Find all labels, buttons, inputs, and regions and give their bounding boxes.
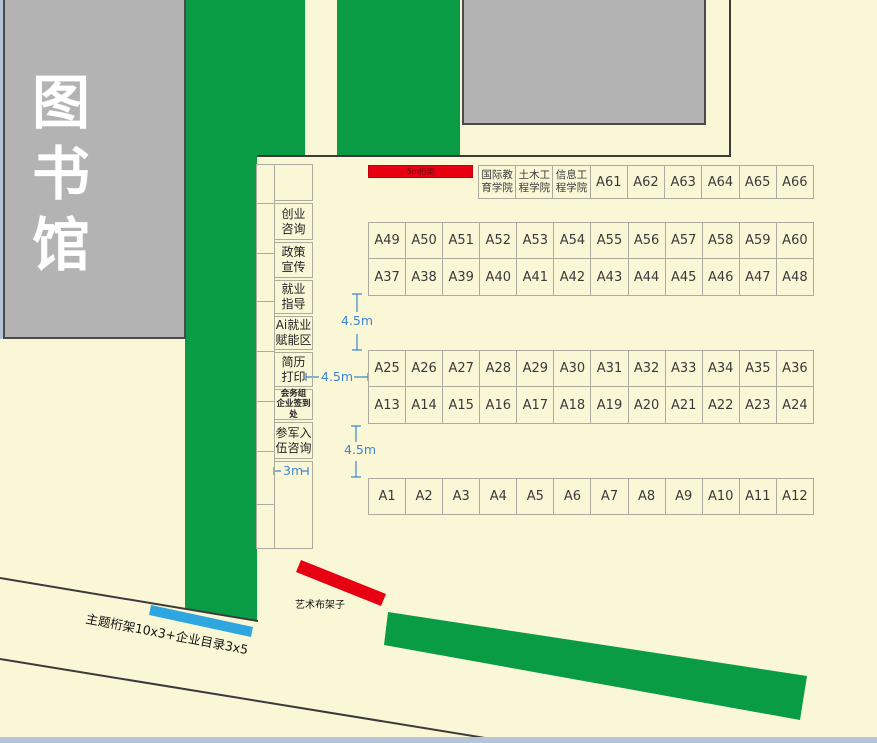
booth-cell: A58 <box>703 223 740 258</box>
booth-cell: A43 <box>591 259 628 295</box>
booth-cell: A41 <box>517 259 554 295</box>
booth-cell: A50 <box>406 223 443 258</box>
booth-cell: A18 <box>554 387 591 423</box>
booth-cell: A39 <box>443 259 480 295</box>
service-booth: 简历 打印 <box>274 352 313 387</box>
booth-cell: A13 <box>369 387 406 423</box>
dimension-path-width: 3m <box>283 465 303 478</box>
service-booth: Ai就业 赋能区 <box>274 316 313 350</box>
booth-cell: A9 <box>666 479 703 514</box>
booth-cell: A48 <box>777 259 813 295</box>
booth-cell: A33 <box>666 351 703 386</box>
booth-cell: A3 <box>443 479 480 514</box>
campus-building-top-right <box>462 0 706 125</box>
service-booth: 就业 指导 <box>274 280 313 314</box>
booth-row-a13-a24[interactable]: A13A14A15A16A17A18A19A20A21A22A23A24 <box>368 386 814 424</box>
booth-cell: A19 <box>591 387 628 423</box>
booth-cell: A28 <box>480 351 517 386</box>
service-booth: 参军入 伍咨询 <box>274 422 313 459</box>
booth-cell: 土木工 程学院 <box>516 166 553 198</box>
booth-cell: A49 <box>369 223 406 258</box>
service-booth <box>274 164 313 201</box>
service-booth: 会务组 企业签到处 <box>274 389 313 420</box>
library-building: 图书馆 <box>3 0 186 339</box>
booth-row-a37-a48[interactable]: A37A38A39A40A41A42A43A44A45A46A47A48 <box>368 258 814 296</box>
booth-cell: A2 <box>406 479 443 514</box>
booth-cell: A66 <box>777 166 813 198</box>
booth-cell: A47 <box>740 259 777 295</box>
booth-cell: A23 <box>740 387 777 423</box>
booth-cell: A14 <box>406 387 443 423</box>
booth-cell: A35 <box>740 351 777 386</box>
booth-cell: A54 <box>554 223 591 258</box>
booth-cell: A52 <box>480 223 517 258</box>
booth-cell: A31 <box>591 351 628 386</box>
booth-cell: A21 <box>666 387 703 423</box>
booth-cell: A51 <box>443 223 480 258</box>
booth-cell: A37 <box>369 259 406 295</box>
booth-cell: A22 <box>703 387 740 423</box>
booth-cell: A61 <box>591 166 628 198</box>
booth-cell: A1 <box>369 479 406 514</box>
booth-cell: A16 <box>480 387 517 423</box>
booth-cell: A29 <box>517 351 554 386</box>
booth-cell: A26 <box>406 351 443 386</box>
truss-5m-bar[interactable]: 5m桁架 <box>368 165 473 178</box>
booth-cell: A4 <box>480 479 517 514</box>
booth-cell: A10 <box>703 479 740 514</box>
booth-cell: A36 <box>777 351 813 386</box>
booth-row-a25-a36[interactable]: A25A26A27A28A29A30A31A32A33A34A35A36 <box>368 350 814 387</box>
green-stage-bar <box>384 612 807 720</box>
booth-cell: A11 <box>740 479 777 514</box>
booth-cell: A63 <box>665 166 702 198</box>
booth-cell: A44 <box>629 259 666 295</box>
booth-cell: A6 <box>554 479 591 514</box>
booth-cell: A34 <box>703 351 740 386</box>
booth-cell: A15 <box>443 387 480 423</box>
dimension-gap-bottom: 4.5m <box>344 444 376 457</box>
road-line-lower <box>0 659 516 743</box>
booth-cell: 国际教 育学院 <box>479 166 516 198</box>
booth-cell: A42 <box>554 259 591 295</box>
art-rack-label: 艺术布架子 <box>295 596 345 611</box>
booth-cell: A56 <box>629 223 666 258</box>
path-side-stall-column <box>256 164 275 549</box>
booth-cell: A40 <box>480 259 517 295</box>
booth-cell: A17 <box>517 387 554 423</box>
booth-cell: A12 <box>777 479 813 514</box>
dimension-gap-left: 4.5m <box>321 371 353 384</box>
library-label: 图书馆 <box>27 72 85 285</box>
booth-cell: A65 <box>740 166 777 198</box>
canvas-edge-left <box>0 0 3 339</box>
booth-cell: A59 <box>740 223 777 258</box>
booth-row-a49-a60[interactable]: A49A50A51A52A53A54A55A56A57A58A59A60 <box>368 222 814 259</box>
dimension-gap-top: 4.5m <box>341 315 373 328</box>
booth-cell: A55 <box>591 223 628 258</box>
booth-row-a1-a12[interactable]: A1A2A3A4A5A6A7A8A9A10A11A12 <box>368 478 814 515</box>
booth-cell: A8 <box>629 479 666 514</box>
canvas-edge-bottom <box>0 737 877 743</box>
booth-cell: A62 <box>628 166 665 198</box>
booth-cell: A27 <box>443 351 480 386</box>
green-lawn-top <box>337 0 460 156</box>
booth-cell: A45 <box>666 259 703 295</box>
booth-cell: A20 <box>629 387 666 423</box>
booth-cell: A38 <box>406 259 443 295</box>
booth-cell: A46 <box>703 259 740 295</box>
booth-row-colleges-a61-a66[interactable]: 国际教 育学院土木工 程学院信息工 程学院A61A62A63A64A65A66 <box>478 165 814 199</box>
booth-cell: A24 <box>777 387 813 423</box>
service-booth: 创业 咨询 <box>274 203 313 240</box>
truss-5m-label: 5m桁架 <box>407 168 434 176</box>
booth-cell: A57 <box>666 223 703 258</box>
booth-cell: 信息工 程学院 <box>553 166 590 198</box>
booth-cell: A64 <box>702 166 739 198</box>
booth-cell: A32 <box>629 351 666 386</box>
service-booth-column[interactable]: 创业 咨询政策 宣传就业 指导Ai就业 赋能区简历 打印会务组 企业签到处参军入… <box>274 164 313 551</box>
booth-cell: A30 <box>554 351 591 386</box>
booth-cell: A25 <box>369 351 406 386</box>
service-booth: 政策 宣传 <box>274 242 313 278</box>
booth-cell: A53 <box>517 223 554 258</box>
booth-cell: A5 <box>517 479 554 514</box>
booth-cell: A60 <box>777 223 813 258</box>
booth-cell: A7 <box>591 479 628 514</box>
